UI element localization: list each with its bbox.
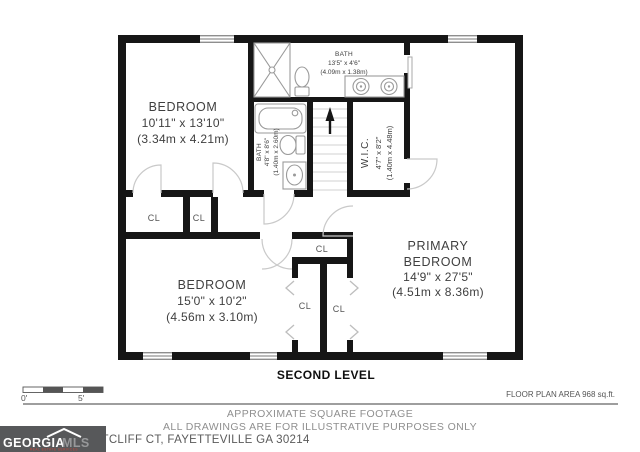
closet-label: CL bbox=[299, 301, 312, 311]
wall-outer-right bbox=[515, 35, 523, 360]
floor-plan-area-note: FLOOR PLAN AREA 968 sq.ft. bbox=[506, 390, 615, 399]
primary-name-2: BEDROOM bbox=[404, 255, 473, 269]
bath-top-metric: (4.09m x 1.38m) bbox=[320, 69, 367, 76]
door-leaf-bath1 bbox=[408, 57, 412, 88]
bath-hall-metric: (1.40m x 2.60m) bbox=[273, 128, 280, 175]
door-bath2 bbox=[264, 194, 294, 224]
primary-name-1: PRIMARY bbox=[408, 239, 469, 253]
wall-lower-cl-right-b bbox=[347, 340, 353, 352]
chevron-left-icon bbox=[286, 325, 294, 339]
scale-bar: 0' 5' bbox=[21, 387, 103, 403]
primary-dims: 14'9" x 27'5" bbox=[403, 270, 473, 284]
bedroom-top-dims: 10'11" x 13'10" bbox=[142, 116, 225, 130]
scale-five: 5' bbox=[78, 393, 85, 403]
disclaimer-line-1: APPROXIMATE SQUARE FOOTAGE bbox=[227, 408, 413, 420]
bath-hall-name: BATH bbox=[256, 143, 263, 161]
wall-bath1-bottom bbox=[254, 97, 410, 102]
stairs bbox=[313, 107, 347, 190]
logo-tagline: REAL ESTATE SERVICES bbox=[30, 448, 78, 452]
chevron-right-icon bbox=[350, 281, 358, 295]
chevron-left-icon bbox=[286, 281, 294, 295]
wall-bed1-bottom-b bbox=[161, 190, 213, 197]
wall-bath2-bottom-a bbox=[254, 190, 264, 197]
window-top-left bbox=[200, 35, 234, 43]
window-top-right bbox=[448, 35, 477, 43]
closet-label: CL bbox=[193, 213, 206, 223]
wall-closet2-right bbox=[211, 197, 218, 232]
wall-lower-cl-center bbox=[320, 264, 327, 352]
bedroom-top-name: BEDROOM bbox=[149, 100, 218, 114]
window-bottom-center bbox=[250, 352, 277, 360]
footer: SECOND LEVEL 0' 5' FLOOR PLAN AREA 968 s… bbox=[0, 368, 618, 452]
wall-closet-divider bbox=[183, 197, 190, 232]
bedroom-bottom-metric: (4.56m x 3.10m) bbox=[166, 310, 258, 324]
chevron-right-icon bbox=[350, 325, 358, 339]
disclaimer-line-2: ALL DRAWINGS ARE FOR ILLUSTRATIVE PURPOS… bbox=[163, 421, 477, 433]
wic-dims: 4'7" x 8'2" bbox=[374, 136, 383, 169]
primary-metric: (4.51m x 8.36m) bbox=[392, 285, 484, 299]
wall-lower-cl-left-b bbox=[292, 340, 298, 352]
bathtub-fixture bbox=[255, 104, 306, 133]
wall-lower-cl-right-a bbox=[347, 264, 353, 278]
floor-plan-canvas: BEDROOM 10'11" x 13'10" (3.34m x 4.21m) … bbox=[0, 0, 640, 452]
wall-bedroom1-bath bbox=[248, 43, 254, 197]
bedroom-bottom-name: BEDROOM bbox=[178, 278, 247, 292]
wall-upper-cl-right bbox=[347, 239, 353, 257]
wall-bath1-door-stub-top bbox=[404, 43, 410, 55]
sink-fixture-bath2 bbox=[283, 162, 306, 189]
wall-bath2-bottom-b bbox=[294, 190, 313, 197]
scale-zero: 0' bbox=[21, 393, 28, 403]
wall-bath2-stairs bbox=[307, 102, 313, 197]
bath-top-dims: 13'5" x 4'6" bbox=[328, 60, 361, 67]
door-primary bbox=[323, 206, 353, 236]
door-bedroom1-left bbox=[133, 165, 161, 193]
bath-hall-dims: 4'8" x 8'6" bbox=[264, 137, 271, 166]
wall-bed1-bottom-a bbox=[126, 190, 133, 197]
double-vanity-fixture bbox=[345, 76, 404, 97]
wall-lower-cl-left-a bbox=[292, 264, 298, 278]
wall-hall-bottom bbox=[126, 232, 260, 239]
closet-label: CL bbox=[316, 244, 329, 254]
door-bedroom1-right bbox=[213, 163, 243, 193]
bedroom-bottom-dims: 15'0" x 10'2" bbox=[177, 294, 247, 308]
property-address: ITCLIFF CT, FAYETTEVILLE GA 30214 bbox=[98, 434, 310, 446]
wall-bed1-bottom-c bbox=[243, 190, 254, 197]
window-bottom-left bbox=[143, 352, 172, 360]
georgia-mls-logo: GEORGIA MLS REAL ESTATE SERVICES bbox=[0, 426, 106, 452]
wic-name: W.I.C. bbox=[360, 138, 371, 168]
door-wic bbox=[407, 159, 437, 189]
wall-stairs-wic bbox=[347, 102, 353, 197]
wall-lower-cl-top bbox=[292, 257, 353, 264]
bath-top-name: BATH bbox=[335, 51, 353, 58]
shower-fixture bbox=[254, 43, 290, 97]
level-title: SECOND LEVEL bbox=[277, 368, 375, 382]
closet-label: CL bbox=[148, 213, 161, 223]
toilet-fixture-bath2 bbox=[280, 136, 305, 155]
wall-wic-right-upper bbox=[404, 102, 410, 159]
wall-outer-left bbox=[118, 35, 126, 360]
window-bottom-right bbox=[443, 352, 487, 360]
toilet-fixture-bath1 bbox=[295, 67, 309, 96]
bedroom-top-metric: (3.34m x 4.21m) bbox=[137, 132, 229, 146]
stairs-up-arrow-icon bbox=[326, 107, 335, 134]
wall-wic-bottom bbox=[347, 190, 410, 197]
closet-label: CL bbox=[333, 304, 346, 314]
wic-metric: (1.40m x 4.48m) bbox=[385, 125, 394, 180]
